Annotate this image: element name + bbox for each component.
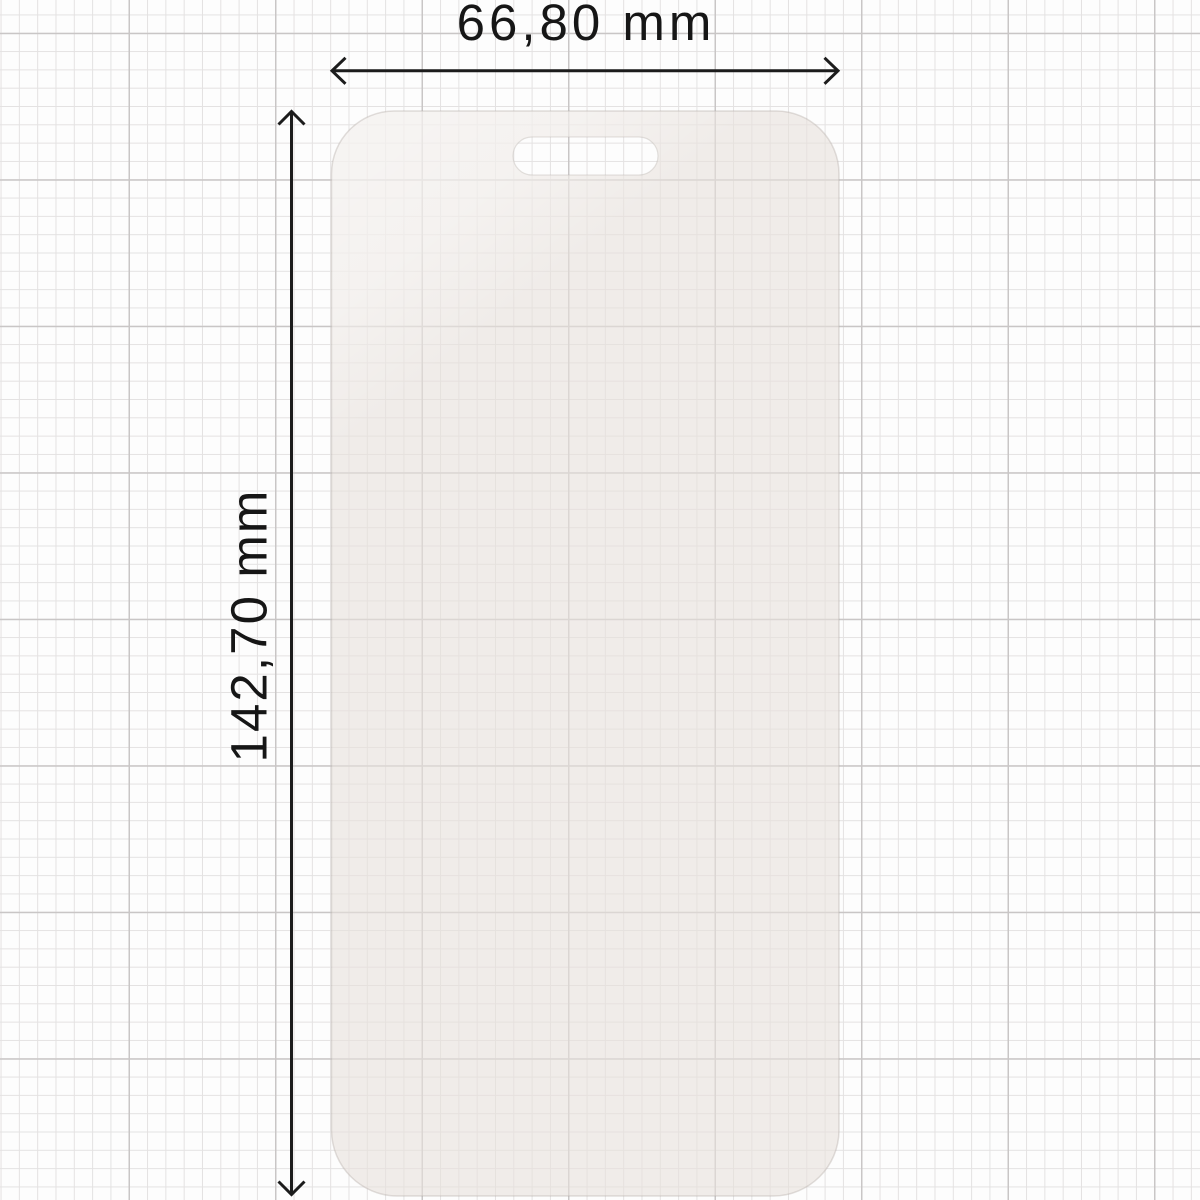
svg-text:142,70 mm: 142,70 mm: [221, 488, 278, 762]
svg-text:66,80 mm: 66,80 mm: [457, 0, 716, 51]
